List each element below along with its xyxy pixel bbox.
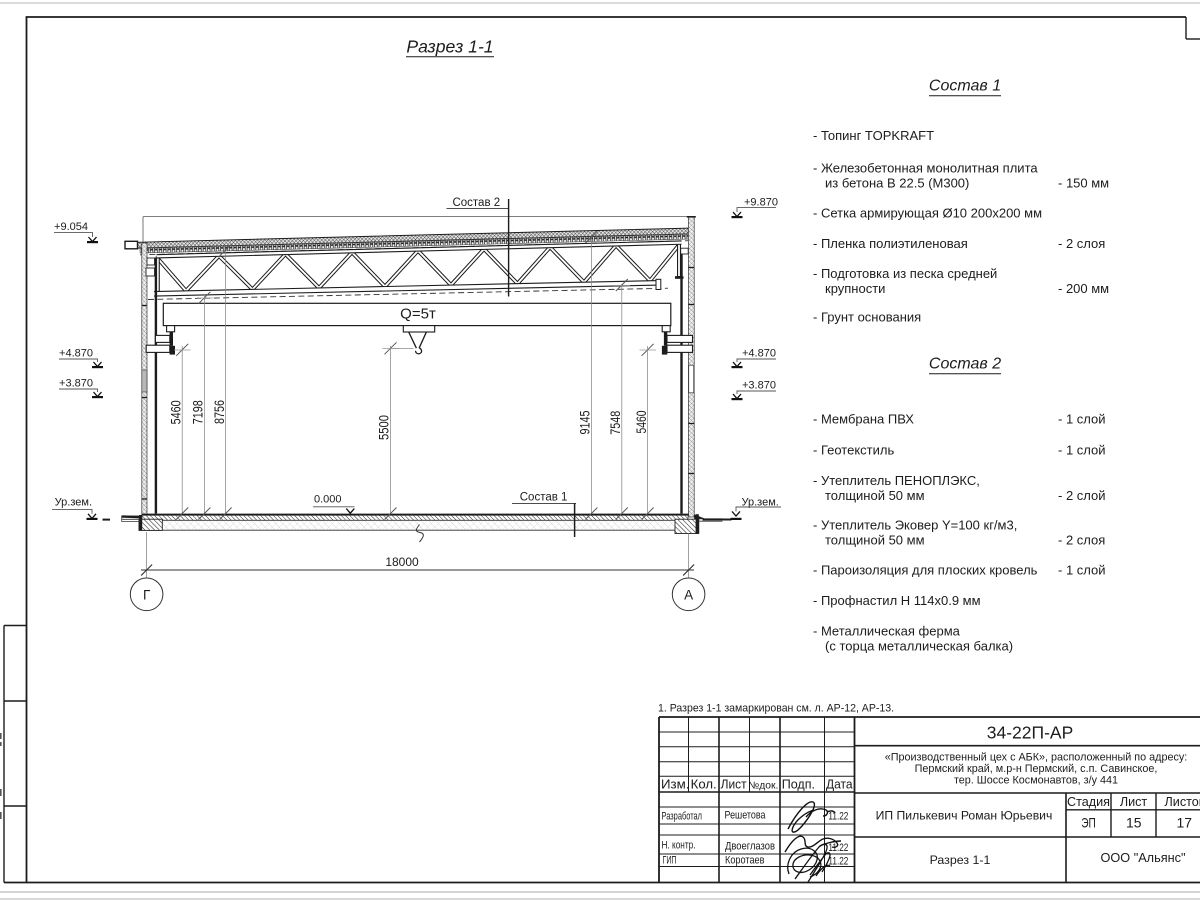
svg-text:+3.870: +3.870 — [742, 379, 776, 391]
svg-text:11.22: 11.22 — [828, 811, 848, 823]
svg-text:Листов: Листов — [1165, 795, 1200, 809]
svg-text:- Сетка армирующая Ø10 200х200: - Сетка армирующая Ø10 200х200 мм — [813, 206, 1042, 221]
svg-text:толщиной 50 мм: толщиной 50 мм — [825, 488, 925, 503]
svg-text:ГИП: ГИП — [663, 855, 677, 867]
svg-text:Лист: Лист — [721, 778, 747, 792]
svg-text:- 200 мм: - 200 мм — [1058, 281, 1109, 296]
svg-text:Ур.зем.: Ур.зем. — [742, 496, 779, 508]
svg-text:Состав 1: Состав 1 — [929, 78, 1001, 95]
svg-text:11.22: 11.22 — [828, 856, 848, 868]
svg-text:«Производственный цех с АБК»,: «Производственный цех с АБК», расположен… — [885, 752, 1188, 764]
svg-text:Лист: Лист — [1120, 795, 1148, 809]
svg-text:- Топинг TOPKRAFT: - Топинг TOPKRAFT — [813, 128, 934, 143]
svg-text:Состав 2: Состав 2 — [929, 356, 1001, 373]
svg-text:толщиной 50 мм: толщиной 50 мм — [825, 533, 925, 548]
svg-text:Кол.: Кол. — [691, 778, 717, 792]
svg-text:- 1 слой: - 1 слой — [1058, 563, 1106, 578]
svg-text:- Геотекстиль: - Геотекстиль — [813, 443, 894, 458]
svg-text:ИП Пилькевич Роман Юрьевич: ИП Пилькевич Роман Юрьевич — [876, 809, 1053, 823]
svg-text:Г: Г — [143, 587, 151, 602]
svg-text:8756: 8756 — [212, 400, 227, 424]
svg-text:Разработал: Разработал — [662, 811, 703, 823]
svg-text:15: 15 — [1126, 815, 1142, 831]
svg-text:Изм.: Изм. — [661, 778, 689, 792]
svg-text:17: 17 — [1177, 815, 1193, 831]
svg-text:Н. контр.: Н. контр. — [662, 840, 696, 852]
svg-text:11.22: 11.22 — [828, 842, 848, 854]
svg-text:Ур.зем.: Ур.зем. — [55, 497, 92, 509]
svg-text:- Мембрана ПВХ: - Мембрана ПВХ — [813, 412, 914, 427]
svg-text:- Металлическая ферма: - Металлическая ферма — [813, 624, 961, 639]
svg-text:- Пароизоляция для плоских кро: - Пароизоляция для плоских кровель — [813, 563, 1038, 578]
svg-text:Пермский край, м.р-н Пермский,: Пермский край, м.р-н Пермский, с.п. Сави… — [915, 763, 1158, 775]
svg-text:А: А — [684, 587, 693, 602]
svg-text:7548: 7548 — [608, 411, 623, 435]
svg-text:- 2 слоя: - 2 слоя — [1058, 533, 1105, 548]
svg-text:- Пленка полиэтиленовая: - Пленка полиэтиленовая — [813, 236, 968, 251]
svg-text:Дата: Дата — [826, 778, 853, 792]
svg-text:9145: 9145 — [578, 411, 593, 435]
svg-text:Двоеглазов: Двоеглазов — [725, 841, 775, 853]
svg-text:- Подготовка из песка средней: - Подготовка из песка средней — [813, 266, 997, 281]
svg-text:из бетона В 22.5 (М300): из бетона В 22.5 (М300) — [825, 176, 969, 191]
svg-text:- 2 слоя: - 2 слоя — [1058, 236, 1105, 251]
svg-text:5460: 5460 — [168, 400, 183, 424]
svg-text:ООО "Альянс": ООО "Альянс" — [1101, 850, 1186, 865]
svg-text:- 150 мм: - 150 мм — [1058, 176, 1109, 191]
svg-text:ЭП: ЭП — [1081, 815, 1096, 831]
svg-text:+4.870: +4.870 — [742, 347, 776, 359]
svg-text:+3.870: +3.870 — [59, 377, 93, 389]
svg-text:Коротаев: Коротаев — [725, 855, 765, 867]
svg-text:- Профнастил Н 114х0.9 мм: - Профнастил Н 114х0.9 мм — [813, 593, 981, 608]
svg-text:- Утеплитель Эковер Y=100 кг/м: - Утеплитель Эковер Y=100 кг/м3, — [813, 518, 1017, 533]
svg-text:Подп.: Подп. — [782, 778, 815, 792]
svg-text:+9.054: +9.054 — [54, 221, 88, 233]
svg-text:Состав 2: Состав 2 — [452, 197, 500, 209]
svg-text:(с торца металлическая балка): (с торца металлическая балка) — [825, 639, 1013, 654]
svg-text:- Грунт основания: - Грунт основания — [813, 310, 921, 325]
svg-text:0.000: 0.000 — [314, 494, 342, 506]
svg-text:Решетова: Решетова — [725, 810, 767, 822]
svg-text:5500: 5500 — [377, 415, 392, 440]
svg-text:№док.: №док. — [748, 781, 778, 792]
svg-text:Стадия: Стадия — [1067, 795, 1110, 809]
svg-text:18000: 18000 — [385, 555, 419, 569]
svg-text:+9.870: +9.870 — [744, 197, 778, 209]
svg-text:+4.870: +4.870 — [59, 347, 93, 359]
svg-text:1. Разрез 1-1 замаркирован см.: 1. Разрез 1-1 замаркирован см. л. АР-12,… — [658, 703, 894, 715]
svg-text:- Железобетонная монолитная п: - Железобетонная монолитная плита — [813, 161, 1038, 176]
svg-text:- 1 слой: - 1 слой — [1058, 443, 1106, 458]
svg-text:34-22П-АР: 34-22П-АР — [987, 723, 1074, 743]
svg-text:- Утеплитель ПЕНОПЛЭКС,: - Утеплитель ПЕНОПЛЭКС, — [813, 473, 980, 488]
svg-text:- 2 слой: - 2 слой — [1058, 488, 1106, 503]
svg-text:Разрез 1-1: Разрез 1-1 — [930, 853, 991, 867]
svg-text:Q=5т: Q=5т — [400, 306, 436, 323]
svg-text:Состав 1: Состав 1 — [520, 492, 568, 504]
svg-text:тер. Шоссе Космонавтов, з/у 44: тер. Шоссе Космонавтов, з/у 441 — [954, 775, 1118, 787]
svg-text:- 1 слой: - 1 слой — [1058, 412, 1106, 427]
svg-text:7198: 7198 — [191, 400, 206, 424]
svg-text:Разрез 1-1: Разрез 1-1 — [406, 37, 493, 57]
svg-text:5460: 5460 — [634, 411, 649, 434]
svg-text:крупности: крупности — [825, 281, 885, 296]
